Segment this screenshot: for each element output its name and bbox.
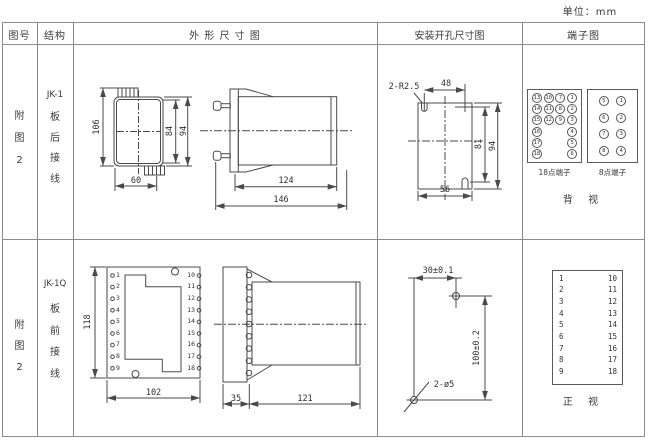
terminal-blank: [544, 138, 554, 148]
dim-100: 100±0.2: [472, 330, 482, 366]
row2-view-label: 正 视: [522, 393, 645, 408]
row2-front-left-numbers: 12 34 56 78 9: [116, 270, 120, 374]
terminal-pin: 7: [599, 129, 609, 139]
terminal-pin: 8: [599, 146, 609, 156]
terminal-pin: 2: [616, 113, 626, 123]
col-header-mounting: 安装开孔尺寸图: [377, 27, 522, 42]
terminal-pin: 2: [567, 104, 577, 114]
dim-106: 106: [92, 119, 102, 134]
terminal-pin: 3: [616, 129, 626, 139]
terminal-pin: 4: [616, 146, 626, 156]
terminal-pin: 16: [532, 127, 542, 137]
terminal-8pt-label: 8点端子: [587, 167, 638, 178]
row2-model: JK-1Q: [37, 279, 73, 289]
col-header-struct: 结构: [37, 27, 73, 42]
row2-side-view: [214, 267, 366, 409]
terminal-pin: 6: [599, 113, 609, 123]
terminal-blank: [544, 127, 554, 137]
terminal-blank: [555, 127, 565, 137]
dim-81: 81: [474, 139, 484, 149]
terminal-pin: 17: [532, 138, 542, 148]
row2-terminal-right-numbers: 1011 1213 1415 1617 18: [598, 273, 617, 378]
dim-146: 146: [273, 195, 288, 205]
row2-terminal-left-numbers: 12 34 56 78 9: [559, 273, 564, 378]
dim-30: 30±0.1: [423, 266, 454, 276]
row1-view-label: 背 视: [522, 191, 645, 206]
dim-35: 35: [231, 394, 241, 404]
dim-94b: 94: [488, 141, 498, 151]
row2-wiring: 板前接线: [37, 299, 73, 385]
terminal-pin: 10: [544, 93, 554, 103]
table-grid: [2, 22, 645, 437]
terminal-pin: 4: [567, 127, 577, 137]
drawing-svg: [0, 0, 648, 445]
col-header-outline: 外 形 尺 寸 图: [73, 27, 377, 42]
terminal-18pt-label: 18点端子: [527, 167, 582, 178]
terminal-pin: 7: [555, 93, 565, 103]
terminal-pin: 8: [555, 104, 565, 114]
terminal-pin: 11: [544, 104, 554, 114]
unit-label: 单位：mm: [540, 3, 640, 18]
terminal-pin: 3: [567, 115, 577, 125]
drawing-sheet: 单位：mm 图号 结构 外 形 尺 寸 图 安装开孔尺寸图 端子图 附图2 JK…: [0, 0, 648, 445]
col-header-fig: 图号: [2, 27, 37, 42]
terminal-pin: 5: [567, 138, 577, 148]
dim-holes: 2-ø5: [434, 380, 454, 390]
dim-94: 94: [179, 126, 189, 136]
row1-front-view: [100, 88, 192, 191]
terminal-block-18pt: 13 10 7 1 14 11 8 2 15 12 9 3 16 4 17 5 …: [527, 89, 582, 163]
terminal-pin: 15: [532, 115, 542, 125]
terminal-pin: 1: [616, 96, 626, 106]
dim-60: 60: [131, 176, 141, 186]
dim-56: 56: [440, 185, 450, 195]
col-header-terminal: 端子图: [522, 27, 645, 42]
row1-wiring: 板后接线: [37, 108, 73, 190]
terminal-blank: [555, 138, 565, 148]
row1-model: JK-1: [37, 90, 73, 100]
dim-121: 121: [297, 394, 312, 404]
terminal-pin: 14: [532, 104, 542, 114]
dim-124: 124: [278, 176, 293, 186]
row2-front-right-numbers: 1011 1213 1415 1617 18: [185, 270, 195, 374]
dim-48: 48: [441, 79, 451, 89]
terminal-pin: 1: [567, 93, 577, 103]
dim-slot-label: 2-R2.5: [389, 82, 420, 92]
row2-fig-no: 附图2: [2, 315, 37, 378]
row1-side-view: [200, 89, 352, 210]
terminal-block-8pt: 5 1 6 2 7 3 8 4: [587, 89, 638, 163]
row1-fig-no: 附图2: [2, 106, 37, 172]
terminal-pin: 18: [532, 149, 542, 159]
terminal-pin: 9: [555, 115, 565, 125]
dim-118: 118: [83, 314, 93, 329]
terminal-pin: 5: [599, 96, 609, 106]
terminal-pin: 13: [532, 93, 542, 103]
terminal-blank: [544, 149, 554, 159]
terminal-blank: [555, 149, 565, 159]
terminal-pin: 6: [567, 149, 577, 159]
terminal-pin: 12: [544, 115, 554, 125]
dim-102: 102: [146, 388, 161, 398]
dim-84: 84: [165, 126, 175, 136]
